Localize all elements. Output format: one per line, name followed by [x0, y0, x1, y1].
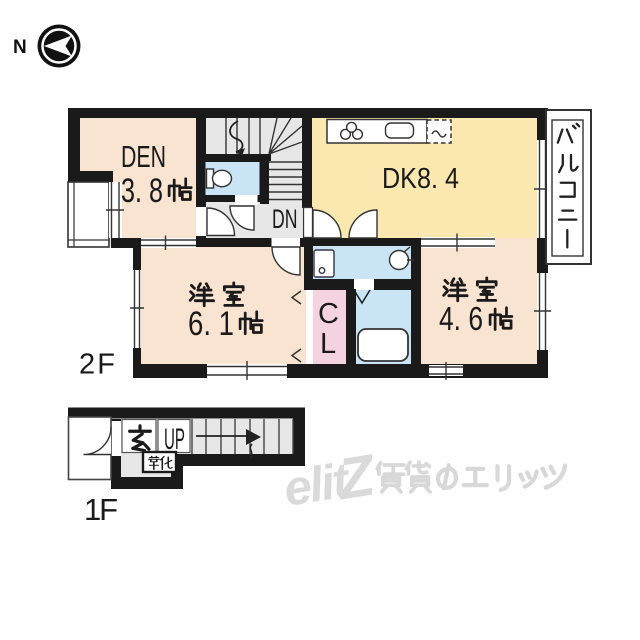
svg-text:3. 8: 3. 8 [121, 172, 163, 210]
svg-text:L: L [320, 328, 336, 360]
svg-text:6. 1: 6. 1 [188, 305, 234, 343]
svg-text:DEN: DEN [121, 139, 166, 174]
svg-text:C: C [318, 298, 339, 330]
svg-text:DK8. 4: DK8. 4 [382, 163, 459, 195]
svg-text:1F: 1F [84, 492, 118, 527]
svg-text:4. 6: 4. 6 [439, 300, 483, 337]
svg-text:DN: DN [272, 204, 298, 234]
svg-text:2F: 2F [79, 349, 115, 381]
svg-text:N: N [13, 37, 27, 58]
